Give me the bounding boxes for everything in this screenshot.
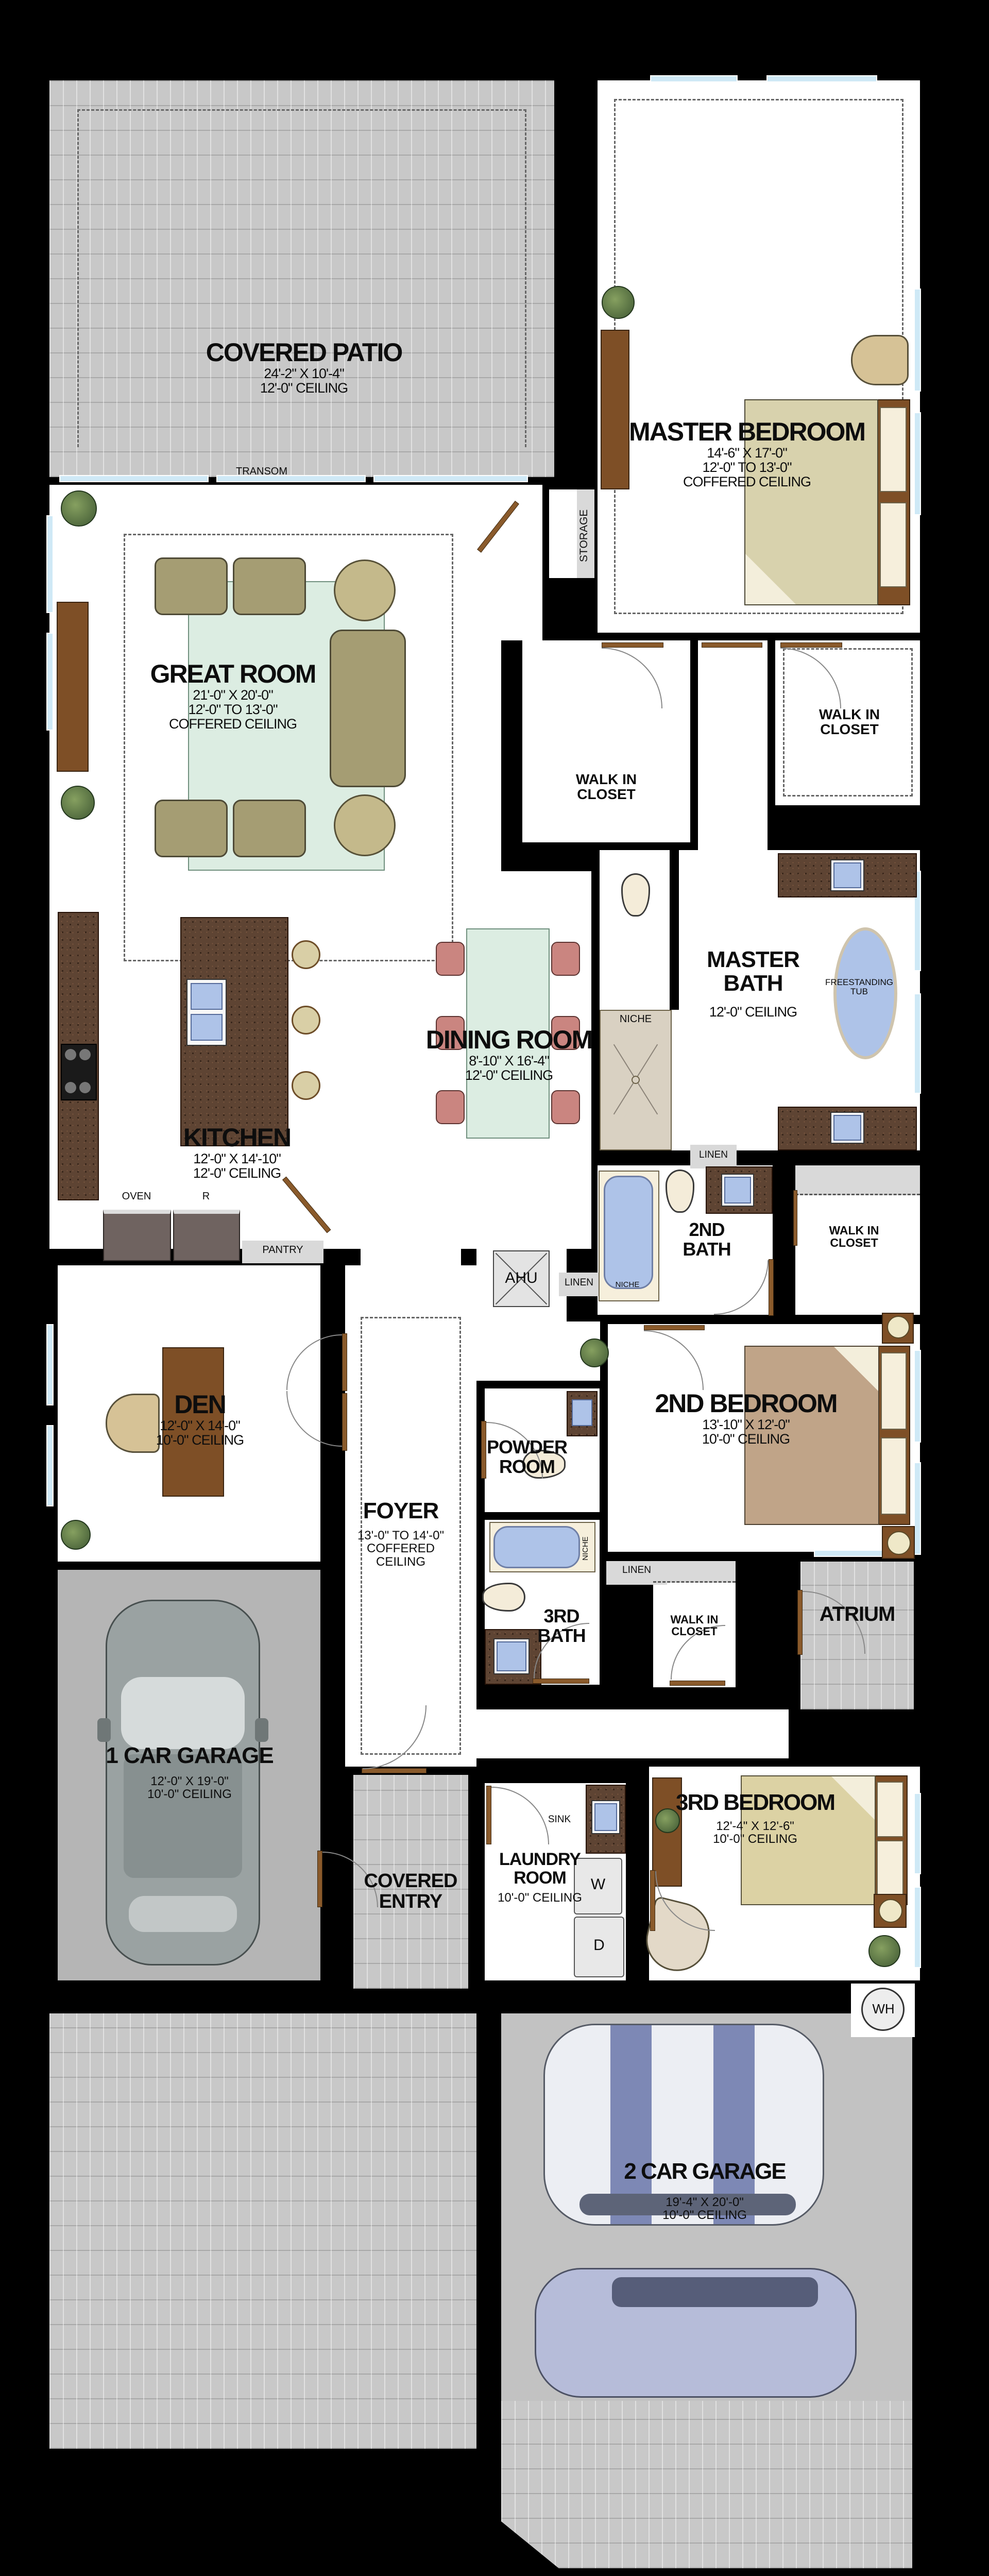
den-label: DEN 12'-0" X 14'-0" 10'-0" CEILING [156, 1391, 244, 1447]
closet-line2: CLOSET [829, 1236, 879, 1249]
room-title: KITCHEN [183, 1124, 291, 1151]
car-suv-mirror [97, 1718, 111, 1742]
room-title2: ROOM [487, 1457, 567, 1477]
room-title2: ENTRY [364, 1892, 457, 1912]
master-vanity-2-basin [833, 1115, 861, 1141]
den-window [46, 1324, 54, 1405]
atrium-door [797, 1590, 803, 1655]
car-sedan-windows [612, 2277, 818, 2307]
room-title2: ROOM [498, 1869, 582, 1888]
wic2-carpet-band [795, 1165, 920, 1195]
room-title: 2ND BEDROOM [655, 1390, 837, 1417]
master-bath-window [914, 993, 921, 1094]
island-sink-basin [191, 983, 223, 1010]
room-title1: 3RD [537, 1606, 585, 1626]
covered-entry-label: COVERED ENTRY [364, 1871, 457, 1912]
cooktop-burner [65, 1049, 76, 1060]
room-dim: 24'-2" X 10'-4" [206, 366, 402, 381]
room-dim: 12'-4" X 12'-6" [676, 1820, 834, 1833]
master-bedroom-side-window [914, 412, 921, 515]
wic2-label: WALK IN CLOSET [829, 1224, 879, 1249]
third-bath-door [533, 1679, 589, 1684]
storage-label: STORAGE [578, 497, 590, 574]
room-ceiling: 12'-0" CEILING [183, 1166, 291, 1180]
second-bath-toilet [666, 1170, 694, 1213]
room-ceiling2: COFFERED CEILING [629, 474, 865, 489]
great-room-label: GREAT ROOM 21'-0" X 20'-0" 12'-0" TO 13'… [150, 660, 316, 732]
room-dim: 19'-4" X 20'-0" [624, 2196, 785, 2209]
refrigerator-label: R [202, 1191, 210, 1202]
wic2-door [793, 1190, 797, 1246]
master-hall-floor [698, 640, 768, 877]
den-double-door [342, 1393, 347, 1451]
sectional-sofa [330, 630, 406, 787]
closet-line1: WALK IN [671, 1614, 719, 1625]
linen-master-label: LINEN [699, 1150, 728, 1160]
tub2-niche-label: NICHE [616, 1281, 640, 1289]
master-bedroom-window [650, 75, 738, 82]
sink-label: SINK [548, 1815, 571, 1825]
water-heater-label: WH [872, 2002, 894, 2016]
room-title: DINING ROOM [426, 1026, 592, 1054]
potted-plant [868, 1935, 900, 1967]
closet-line2: CLOSET [671, 1625, 719, 1637]
shower-drain [632, 1076, 640, 1084]
round-side-table [334, 560, 396, 621]
den-double-door [342, 1333, 347, 1391]
master-bed-pillow [880, 407, 907, 492]
third-bedroom-window [914, 1793, 921, 1874]
room-ceiling2: COFFERED [357, 1542, 444, 1555]
loveseat [155, 800, 228, 857]
lamp [887, 1316, 910, 1338]
washer-label: W [591, 1876, 605, 1893]
closet-line2: CLOSET [576, 787, 637, 802]
third-bath-tub [493, 1526, 580, 1568]
potted-plant [602, 286, 635, 319]
second-bedroom-window [914, 1462, 921, 1555]
linen3-label: LINEN [622, 1565, 651, 1575]
powder-door [481, 1421, 486, 1479]
potted-plant [61, 786, 95, 820]
closet-line1: WALK IN [829, 1224, 879, 1236]
third-bath-basin [497, 1641, 526, 1671]
second-bedroom-door [644, 1325, 705, 1330]
second-bed-pillow [881, 1352, 907, 1430]
room-title1: COVERED [364, 1871, 457, 1892]
dining-chair [551, 942, 580, 976]
great-room-left-window [46, 633, 54, 731]
room-title: 3RD BEDROOM [676, 1791, 834, 1815]
kitchen-label: KITCHEN 12'-0" X 14'-10" 12'-0" CEILING [183, 1124, 291, 1180]
master-bedroom-window [766, 75, 877, 82]
room-dim: 12'-0" X 14'-10" [183, 1151, 291, 1166]
potted-plant [61, 1520, 91, 1550]
second-bath-door [769, 1259, 774, 1316]
shower-niche-label: NICHE [620, 1014, 652, 1025]
loveseat [233, 800, 306, 857]
ahu-label: AHU [505, 1270, 537, 1286]
master-closet-right-door [780, 642, 842, 648]
second-bath-basin [724, 1177, 751, 1204]
second-bedroom-label: 2ND BEDROOM 13'-10" X 12'-0" 10'-0" CEIL… [655, 1390, 837, 1446]
room-ceiling: 12'-0" CEILING [707, 1005, 799, 1019]
dining-chair [551, 1090, 580, 1124]
wic-master-left-label: WALK IN CLOSET [576, 772, 637, 802]
room-title1: 2ND [683, 1220, 730, 1240]
room-ceiling: 12'-0" TO 13'-0" [629, 460, 865, 474]
second-bath-label: 2ND BATH [683, 1220, 730, 1259]
great-room-transom-window [373, 475, 528, 482]
closet-line2: CLOSET [819, 722, 880, 737]
room-dim: 14'-6" X 17'-0" [629, 446, 865, 460]
room-title: COVERED PATIO [206, 339, 402, 366]
tub3-niche-label: NICHE [581, 1528, 590, 1569]
second-bath-tub [604, 1176, 653, 1289]
room-ceiling: 10'-0" CEILING [156, 1433, 244, 1447]
third-bed-fold [831, 1776, 875, 1820]
wic-master-right-label: WALK IN CLOSET [819, 707, 880, 737]
master-bed-fold [745, 554, 796, 604]
room-title: GREAT ROOM [150, 660, 316, 688]
room-dim: 12'-0" X 19'-0" [106, 1775, 273, 1788]
den-window [46, 1425, 54, 1506]
great-room-left-window [46, 515, 54, 613]
freestanding-tub-label: FREESTANDING TUB [825, 978, 893, 996]
south-hall-floor [476, 1709, 789, 1758]
dining-chair [436, 1090, 465, 1124]
room-title1: MASTER [707, 948, 799, 972]
closet-line1: WALK IN [819, 707, 880, 722]
foyer-label: FOYER 13'-0" TO 14'-0" COFFERED CEILING [357, 1499, 444, 1568]
room-dim: 8'-10" X 16'-4" [426, 1054, 592, 1068]
room-title1: LAUNDRY [498, 1851, 582, 1869]
laundry-basin [594, 1803, 617, 1831]
bar-stool [292, 1071, 320, 1100]
master-bedroom-label: MASTER BEDROOM 14'-6" X 17'-0" 12'-0" TO… [629, 418, 865, 489]
foyer-greatroom-opening [361, 1241, 461, 1274]
room-title: 1 CAR GARAGE [106, 1744, 273, 1768]
water-closet-wall [670, 850, 679, 1010]
cooktop-burner [65, 1082, 76, 1093]
room-ceiling: 13'-0" TO 14'-0" [357, 1529, 444, 1542]
driveway-bottom [501, 2401, 912, 2568]
room-title: FOYER [357, 1499, 444, 1523]
master-bedroom-side-window [914, 289, 921, 392]
room-title2: BATH [683, 1240, 730, 1259]
third-bed-pillow [877, 1840, 903, 1897]
room-title: 2 CAR GARAGE [624, 2160, 785, 2183]
covered-patio-label: COVERED PATIO 24'-2" X 10'-4" 12'-0" CEI… [206, 339, 402, 395]
room-ceiling: 10'-0" CEILING [676, 1833, 834, 1845]
second-bedroom-window [914, 1350, 921, 1443]
potted-plant [580, 1338, 609, 1367]
oven-cabinet [103, 1210, 171, 1261]
pantry-label: PANTRY [262, 1245, 303, 1256]
powder-room-label: POWDER ROOM [487, 1437, 567, 1477]
patio-roof-dashed-line [77, 109, 526, 447]
linen-hall-label: LINEN [565, 1278, 593, 1288]
second-bed-pillow [881, 1437, 907, 1515]
driveway-left [49, 2013, 476, 2449]
room-title2: BATH [707, 972, 799, 995]
third-bath-toilet [482, 1583, 525, 1612]
room-ceiling: 12'-0" CEILING [206, 381, 402, 395]
third-bedroom-window [914, 1887, 921, 1968]
room-ceiling2: COFFERED CEILING [150, 717, 316, 731]
refrigerator-c abinet [173, 1210, 240, 1261]
tub-line2: TUB [825, 987, 893, 996]
master-closet-left-door [602, 642, 663, 648]
room-dim: 21'-0" X 20'-0" [150, 688, 316, 702]
loveseat [155, 557, 228, 615]
room-ceiling: 12'-0" TO 13'-0" [150, 702, 316, 717]
room-ceiling3: CEILING [357, 1555, 444, 1568]
cooktop-burner [79, 1049, 91, 1060]
room-title: DEN [156, 1391, 244, 1418]
lamp [887, 1531, 911, 1555]
transom-label: TRANSOM [236, 466, 287, 477]
one-car-garage-label: 1 CAR GARAGE 12'-0" X 19'-0" 10'-0" CEIL… [106, 1744, 273, 1801]
room-ceiling: 12'-0" CEILING [426, 1068, 592, 1082]
master-bath-label: MASTER BATH 12'-0" CEILING [707, 948, 799, 1020]
room-dim: 12'-0" X 14'-0" [156, 1418, 244, 1433]
storage-closet [549, 489, 577, 578]
third-bed-pillow [877, 1782, 903, 1837]
master-chaise [851, 335, 909, 385]
third-bath-label: 3RD BATH [537, 1606, 585, 1646]
dining-chair [436, 942, 465, 976]
master-vanity-basin [833, 862, 861, 888]
room-dim: 13'-10" X 12'-0" [655, 1417, 837, 1432]
cooktop-burner [79, 1082, 91, 1093]
third-bedroom-door [650, 1870, 655, 1931]
room-title1: POWDER [487, 1437, 567, 1457]
master-toilet [621, 873, 650, 917]
tub-line1: FREESTANDING [825, 978, 893, 987]
wic3-label: WALK IN CLOSET [671, 1614, 719, 1637]
round-side-table [334, 794, 396, 856]
laundry-room-label: LAUNDRY ROOM 10'-0" CEILING [498, 1851, 582, 1905]
island-sink-basin [191, 1014, 223, 1041]
car-suv-rear-window [129, 1896, 237, 1932]
master-dresser [601, 330, 629, 489]
master-bed-pillow [880, 502, 907, 587]
room-title: MASTER BEDROOM [629, 418, 865, 446]
bar-stool [292, 940, 320, 969]
oven-label: OVEN [122, 1191, 151, 1202]
room-ceiling: 10'-0" CEILING [624, 2209, 785, 2222]
room-ceiling: 10'-0" CEILING [655, 1432, 837, 1446]
third-bedroom-label: 3RD BEDROOM 12'-4" X 12'-6" 10'-0" CEILI… [676, 1791, 834, 1846]
powder-basin [572, 1399, 592, 1426]
dryer-label: D [593, 1937, 605, 1954]
car-suv-windshield [121, 1677, 245, 1749]
room-ceiling: 10'-0" CEILING [498, 1891, 582, 1904]
great-room-transom-window [59, 475, 209, 482]
floor-plan: COVERED PATIO 24'-2" X 10'-4" 12'-0" CEI… [0, 0, 989, 2576]
room-title2: BATH [537, 1626, 585, 1646]
dining-room-label: DINING ROOM 8'-10" X 16'-4" 12'-0" CEILI… [426, 1026, 592, 1082]
loveseat [233, 557, 306, 615]
room-ceiling: 10'-0" CEILING [106, 1788, 273, 1801]
closet-line1: WALK IN [576, 772, 637, 787]
media-console [57, 602, 89, 772]
master-hall-door [702, 642, 762, 648]
laundry-door [486, 1786, 491, 1844]
atrium-label: ATRIUM [820, 1603, 895, 1625]
car-suv-mirror [255, 1718, 268, 1742]
potted-plant [61, 490, 97, 527]
entry-door [362, 1768, 427, 1773]
two-car-garage-label: 2 CAR GARAGE 19'-4" X 20'-0" 10'-0" CEIL… [624, 2160, 785, 2222]
garage-house-door [317, 1851, 322, 1907]
wic3-door [670, 1681, 725, 1686]
den-chair [106, 1394, 160, 1453]
room-title: ATRIUM [820, 1603, 895, 1625]
lamp [879, 1899, 902, 1923]
wic3-carpet-band [653, 1561, 736, 1583]
second-bed-fold [834, 1347, 878, 1391]
bar-stool [292, 1006, 320, 1035]
